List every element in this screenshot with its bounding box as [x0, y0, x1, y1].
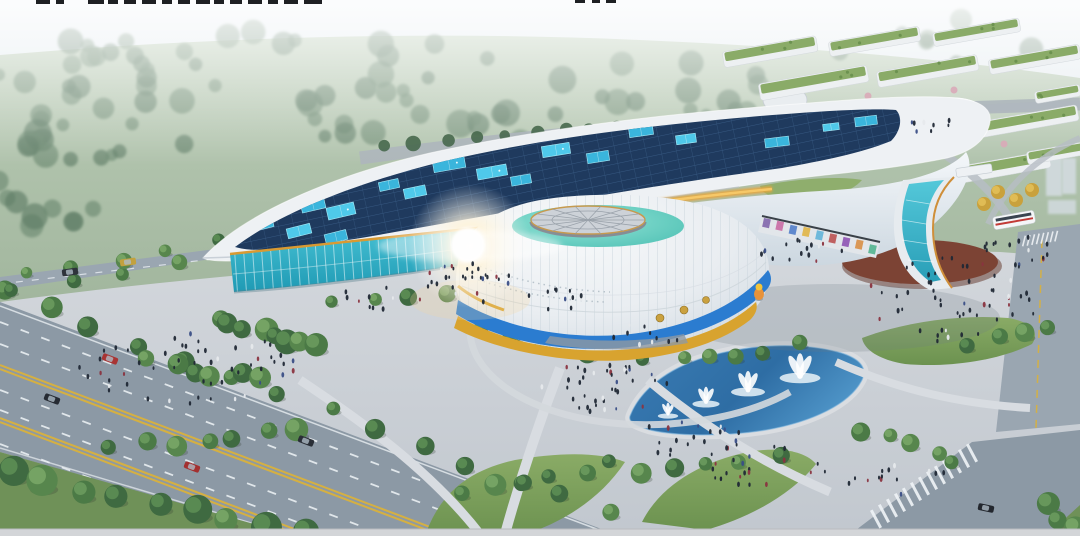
pedestrian	[372, 305, 375, 310]
pedestrian	[177, 358, 179, 363]
scene-svg	[0, 0, 1080, 536]
pedestrian	[173, 336, 176, 341]
pedestrian	[941, 256, 943, 260]
pedestrian	[260, 366, 263, 371]
pedestrian	[582, 375, 584, 380]
pedestrian	[550, 292, 553, 298]
pedestrian	[927, 272, 930, 278]
pedestrian	[675, 438, 678, 443]
pedestrian	[440, 267, 442, 272]
golden-tree	[1025, 183, 1039, 197]
pedestrian	[687, 442, 689, 446]
watermark-fragment	[214, 0, 224, 4]
pedestrian	[210, 382, 212, 386]
pedestrian	[1031, 258, 1033, 262]
pedestrian	[993, 274, 995, 278]
pedestrian	[959, 314, 961, 318]
pedestrian	[452, 285, 454, 290]
pedestrian	[810, 242, 813, 247]
pedestrian	[78, 365, 81, 370]
roadside-tree	[406, 136, 421, 151]
pedestrian	[913, 120, 916, 125]
pedestrian	[570, 306, 573, 311]
pedestrian	[649, 331, 651, 335]
golden-tree	[977, 197, 991, 211]
pedestrian	[197, 349, 199, 353]
pedestrian	[498, 277, 500, 281]
pedestrian	[507, 281, 510, 286]
pedestrian	[796, 238, 798, 243]
pedestrian	[202, 379, 204, 383]
pedestrian	[1025, 290, 1028, 296]
pedestrian	[269, 342, 271, 347]
pedestrian	[765, 482, 768, 487]
pedestrian	[547, 290, 549, 294]
watermark-fragment	[268, 0, 278, 4]
pedestrian	[216, 356, 219, 361]
pedestrian	[221, 380, 224, 385]
pedestrian	[720, 424, 722, 428]
pedestrian	[99, 356, 102, 361]
pedestrian	[658, 441, 660, 445]
pedestrian	[392, 296, 394, 300]
pedestrian	[992, 288, 994, 292]
pedestrian	[712, 467, 715, 472]
pedestrian	[867, 479, 869, 483]
pedestrian	[676, 338, 678, 342]
pedestrian	[743, 470, 746, 475]
watermark-fragment	[178, 0, 190, 4]
pedestrian	[210, 359, 213, 365]
pedestrian	[963, 302, 965, 306]
pedestrian	[566, 365, 568, 370]
pedestrian	[87, 374, 90, 379]
pedestrian	[452, 267, 454, 271]
pedestrian	[608, 363, 611, 368]
watermark-fragment	[575, 0, 585, 3]
pedestrian	[760, 251, 763, 257]
watermark-fragment	[108, 0, 118, 4]
pedestrian	[936, 333, 938, 338]
pedestrian	[960, 332, 963, 337]
pedestrian	[197, 339, 199, 343]
pedestrian	[629, 323, 631, 327]
pedestrian	[632, 379, 634, 383]
pedestrian	[932, 123, 934, 128]
pedestrian	[594, 398, 597, 403]
dome-porthole-3	[703, 297, 710, 304]
pedestrian	[138, 360, 141, 365]
watermark-fragment	[124, 0, 136, 4]
pedestrian	[1007, 294, 1010, 299]
pedestrian	[934, 471, 937, 476]
watermark-fragment	[592, 0, 600, 3]
pedestrian	[934, 272, 936, 276]
pedestrian	[589, 409, 592, 415]
pedestrian	[204, 348, 207, 353]
pedestrian	[108, 388, 110, 392]
pedestrian	[477, 267, 479, 272]
pedestrian	[783, 457, 786, 463]
pedestrian	[881, 469, 883, 473]
pedestrian	[648, 424, 651, 430]
pedestrian	[482, 276, 485, 281]
pedestrian	[185, 344, 188, 349]
dome-porthole-1	[656, 314, 664, 322]
pedestrian	[887, 467, 890, 472]
pedestrian	[947, 334, 950, 340]
pedestrian	[822, 242, 824, 246]
pedestrian	[444, 265, 446, 269]
pedestrian	[485, 273, 487, 277]
pedestrian	[462, 275, 464, 279]
dome-porthole-2	[680, 306, 688, 314]
pedestrian	[244, 394, 246, 398]
pedestrian	[495, 275, 497, 279]
pedestrian	[602, 395, 605, 400]
blossom-tree	[951, 87, 958, 94]
pedestrian	[800, 251, 803, 256]
pedestrian	[719, 429, 722, 434]
pedestrian	[928, 280, 930, 284]
pedestrian	[881, 291, 883, 295]
watermark-fragment	[606, 0, 616, 3]
pedestrian	[818, 245, 820, 249]
pedestrian	[709, 429, 712, 434]
watermark-fragment	[56, 0, 64, 4]
pedestrian	[817, 462, 819, 466]
pedestrian	[901, 308, 903, 312]
pedestrian	[623, 367, 626, 372]
pedestrian	[739, 475, 741, 479]
pedestrian	[824, 470, 826, 474]
pedestrian	[427, 284, 429, 288]
watermark-fragment	[248, 0, 262, 4]
pedestrian	[651, 340, 653, 345]
pedestrian	[1046, 252, 1048, 257]
watermark-fragment	[88, 0, 104, 4]
pedestrian	[279, 353, 282, 358]
pedestrian	[1027, 235, 1030, 240]
pedestrian	[983, 302, 986, 308]
golden-tree	[1009, 193, 1023, 207]
pedestrian	[270, 355, 272, 359]
pedestrian	[451, 264, 453, 268]
pedestrian	[783, 446, 786, 451]
pedestrian	[259, 381, 261, 385]
watermark-fragment	[196, 0, 210, 4]
pedestrian	[940, 303, 942, 308]
pedestrian	[993, 242, 995, 246]
pedestrian	[737, 430, 740, 435]
pedestrian	[569, 289, 571, 293]
pedestrian	[893, 463, 896, 469]
pedestrian	[986, 248, 988, 252]
pedestrian	[251, 344, 254, 349]
pedestrian	[930, 129, 932, 133]
pedestrian	[385, 286, 387, 290]
pedestrian	[788, 258, 790, 262]
pedestrian	[773, 445, 775, 449]
pedestrian	[528, 293, 531, 298]
pedestrian	[1032, 312, 1034, 316]
pedestrian	[181, 343, 183, 347]
pedestrian	[966, 264, 969, 269]
pedestrian	[126, 382, 129, 387]
pedestrian	[346, 295, 349, 300]
pedestrian	[579, 380, 582, 385]
pedestrian	[123, 372, 125, 376]
pedestrian	[841, 249, 843, 253]
pedestrian	[197, 395, 199, 399]
pedestrian	[900, 492, 903, 497]
pedestrian	[1028, 297, 1031, 302]
pedestrian	[732, 458, 734, 463]
pedestrian	[785, 242, 787, 246]
pedestrian	[896, 294, 898, 298]
pedestrian	[962, 312, 964, 316]
pedestrian	[547, 307, 549, 312]
pedestrian	[748, 483, 750, 487]
pedestrian	[595, 403, 597, 407]
pedestrian	[669, 448, 672, 453]
pedestrian	[994, 240, 996, 244]
pedestrian	[656, 450, 659, 456]
pedestrian	[108, 384, 110, 388]
pedestrian	[896, 478, 898, 482]
golden-tree	[991, 185, 1005, 199]
pedestrian	[572, 295, 575, 300]
pedestrian	[273, 360, 275, 364]
pedestrian	[922, 120, 925, 126]
pedestrian	[764, 248, 767, 253]
pedestrian	[103, 348, 105, 352]
pedestrian	[996, 317, 998, 321]
pedestrian	[566, 386, 568, 390]
pedestrian	[1011, 312, 1013, 317]
pedestrian	[603, 407, 606, 412]
pedestrian	[611, 373, 613, 377]
pedestrian	[466, 267, 468, 271]
pedestrian	[957, 311, 959, 315]
roadside-tree	[378, 140, 390, 152]
pedestrian	[654, 379, 656, 383]
pedestrian	[642, 405, 644, 409]
pedestrian	[951, 256, 953, 261]
pedestrian	[667, 339, 670, 344]
pedestrian	[934, 295, 937, 300]
pedestrian	[234, 345, 237, 350]
pedestrian	[127, 348, 129, 352]
pedestrian	[948, 118, 951, 123]
pedestrian	[114, 345, 117, 350]
pedestrian	[870, 283, 873, 288]
watermark-fragment	[230, 0, 242, 4]
pedestrian	[345, 289, 348, 294]
pedestrian	[807, 252, 810, 258]
pedestrian	[1014, 262, 1017, 267]
pedestrian	[358, 299, 360, 303]
pedestrian	[210, 397, 212, 401]
pedestrian	[147, 396, 150, 401]
pedestrian	[189, 401, 191, 406]
pedestrian	[810, 471, 812, 475]
pedestrian	[735, 438, 738, 443]
pedestrian	[583, 368, 586, 374]
pedestrian	[606, 369, 608, 373]
pedestrian	[911, 262, 913, 266]
pedestrian	[578, 406, 580, 410]
pedestrian	[848, 481, 851, 486]
pedestrian	[711, 452, 713, 456]
watermark-fragment	[284, 0, 298, 4]
pedestrian	[878, 476, 880, 480]
pedestrian	[878, 317, 880, 321]
pedestrian	[714, 476, 716, 480]
pedestrian	[962, 264, 964, 269]
pedestrian	[464, 276, 466, 280]
pedestrian	[577, 366, 579, 370]
distant-tree	[43, 200, 61, 218]
pedestrian	[234, 397, 236, 402]
pedestrian	[1017, 238, 1020, 243]
pedestrian	[854, 476, 856, 480]
pedestrian	[936, 339, 938, 344]
pedestrian	[720, 477, 722, 482]
pedestrian	[1008, 303, 1010, 307]
pedestrian	[643, 325, 645, 329]
pedestrian	[725, 445, 728, 451]
architectural-rendering	[0, 0, 1080, 536]
watermark-fragment	[36, 0, 50, 4]
bottom-bar	[0, 529, 1080, 536]
distant-tree	[85, 201, 101, 217]
pedestrian	[1027, 248, 1029, 252]
pedestrian	[572, 397, 575, 402]
pedestrian	[509, 278, 512, 283]
pedestrian	[968, 279, 971, 284]
pedestrian	[881, 474, 883, 478]
pedestrian	[941, 328, 944, 333]
pedestrian	[947, 123, 949, 127]
pedestrian	[715, 462, 717, 466]
blossom-tree	[1001, 141, 1008, 148]
pedestrian	[616, 380, 618, 385]
pedestrian	[638, 342, 641, 348]
pedestrian	[985, 241, 987, 245]
pedestrian	[1046, 242, 1049, 247]
pedestrian	[445, 275, 448, 280]
pedestrian	[940, 298, 942, 302]
pedestrian	[651, 373, 653, 377]
pedestrian	[455, 292, 457, 296]
watermark-fragment	[142, 0, 156, 4]
pedestrian	[1008, 242, 1011, 247]
pedestrian	[703, 439, 706, 444]
pedestrian	[486, 275, 488, 280]
pedestrian	[771, 256, 773, 261]
pedestrian	[567, 377, 570, 383]
pedestrian	[281, 372, 284, 377]
pedestrian	[1020, 294, 1022, 299]
pedestrian	[799, 239, 801, 243]
pedestrian	[692, 435, 695, 440]
pedestrian	[976, 313, 978, 317]
pedestrian	[969, 308, 972, 313]
pedestrian	[283, 362, 285, 367]
roadside-tree	[471, 131, 483, 143]
pedestrian	[933, 285, 935, 289]
pedestrian	[168, 399, 171, 404]
pedestrian	[193, 361, 195, 365]
pedestrian	[586, 405, 589, 410]
pedestrian	[697, 424, 699, 428]
pedestrian	[584, 394, 586, 398]
pedestrian	[264, 340, 266, 344]
pedestrian	[911, 120, 913, 124]
pedestrian	[1009, 278, 1012, 283]
pedestrian	[540, 384, 543, 389]
pedestrian	[593, 371, 595, 376]
pedestrian	[655, 336, 657, 340]
pedestrian	[368, 294, 371, 299]
pedestrian	[614, 388, 616, 393]
distant-tree	[64, 212, 83, 231]
pedestrian	[153, 366, 155, 370]
watermark-fragment	[304, 0, 322, 4]
pedestrian	[724, 427, 726, 431]
pedestrian	[189, 331, 192, 336]
pedestrian	[164, 351, 167, 356]
pedestrian	[108, 378, 110, 382]
pedestrian	[508, 273, 510, 278]
watermark-fragment	[162, 0, 172, 4]
pedestrian	[748, 470, 751, 475]
pedestrian	[250, 363, 252, 367]
pedestrian	[476, 291, 478, 296]
pedestrian	[977, 332, 979, 336]
pedestrian	[419, 297, 421, 301]
pedestrian	[725, 471, 727, 475]
pedestrian	[554, 288, 556, 292]
pedestrian	[737, 482, 740, 487]
pedestrian	[681, 420, 683, 424]
pedestrian	[982, 262, 984, 266]
pedestrian	[99, 371, 101, 375]
pedestrian	[669, 453, 671, 457]
pedestrian	[471, 275, 473, 279]
pedestrian	[436, 281, 439, 286]
pedestrian	[430, 280, 432, 284]
pedestrian	[173, 366, 175, 370]
pedestrian	[471, 261, 474, 266]
pedestrian	[292, 358, 295, 363]
pedestrian	[292, 368, 295, 374]
pedestrian	[237, 370, 239, 374]
pedestrian	[382, 306, 385, 312]
pedestrian	[815, 259, 817, 263]
pedestrian	[932, 289, 934, 293]
pedestrian	[928, 469, 931, 474]
pedestrian	[989, 304, 991, 308]
pedestrian	[897, 308, 900, 314]
pedestrian	[369, 305, 371, 309]
pedestrian	[257, 357, 259, 362]
pedestrian	[906, 290, 909, 295]
pedestrian	[741, 461, 744, 466]
pedestrian	[564, 297, 566, 302]
pedestrian	[748, 454, 750, 458]
